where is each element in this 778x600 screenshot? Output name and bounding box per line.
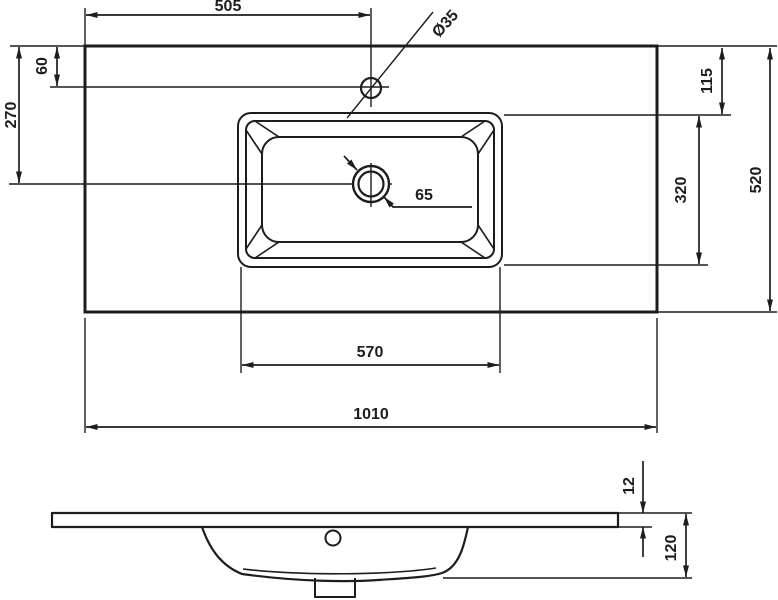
dim-label-60: 60: [34, 57, 51, 75]
dim-label-270: 270: [3, 102, 20, 129]
dim-label-1010: 1010: [353, 406, 389, 423]
basin-inner-rim: [246, 121, 494, 258]
faucet-diameter-leader: [347, 12, 433, 118]
dim-label-505: 505: [215, 0, 242, 15]
basin-floor-outline: [262, 137, 478, 242]
bowl-inner-bottom-line: [243, 568, 436, 574]
dim-label-570: 570: [357, 344, 384, 361]
dim-label-12: 12: [621, 477, 638, 495]
dim-label-120: 120: [663, 535, 680, 562]
dim-label-65: 65: [415, 187, 433, 204]
dim-label-115: 115: [699, 68, 716, 94]
side-view: 12 120: [52, 461, 692, 597]
top-view: 505 Ø35 60 270 115 320 520 570 1010 65: [3, 0, 777, 433]
side-extension-lines: [443, 513, 692, 578]
technical-drawing-canvas: 505 Ø35 60 270 115 320 520 570 1010 65: [0, 0, 778, 600]
extension-lines: [9, 8, 777, 433]
slab-profile: [52, 513, 618, 527]
dim-label-faucet-diameter: Ø35: [429, 7, 462, 41]
overflow-hole: [326, 531, 341, 546]
dim-label-520: 520: [748, 167, 765, 194]
basin-corner-bevels: [246, 121, 494, 258]
washbasin-dimension-drawing: 505 Ø35 60 270 115 320 520 570 1010 65: [0, 0, 778, 600]
dim-label-320: 320: [673, 177, 690, 204]
